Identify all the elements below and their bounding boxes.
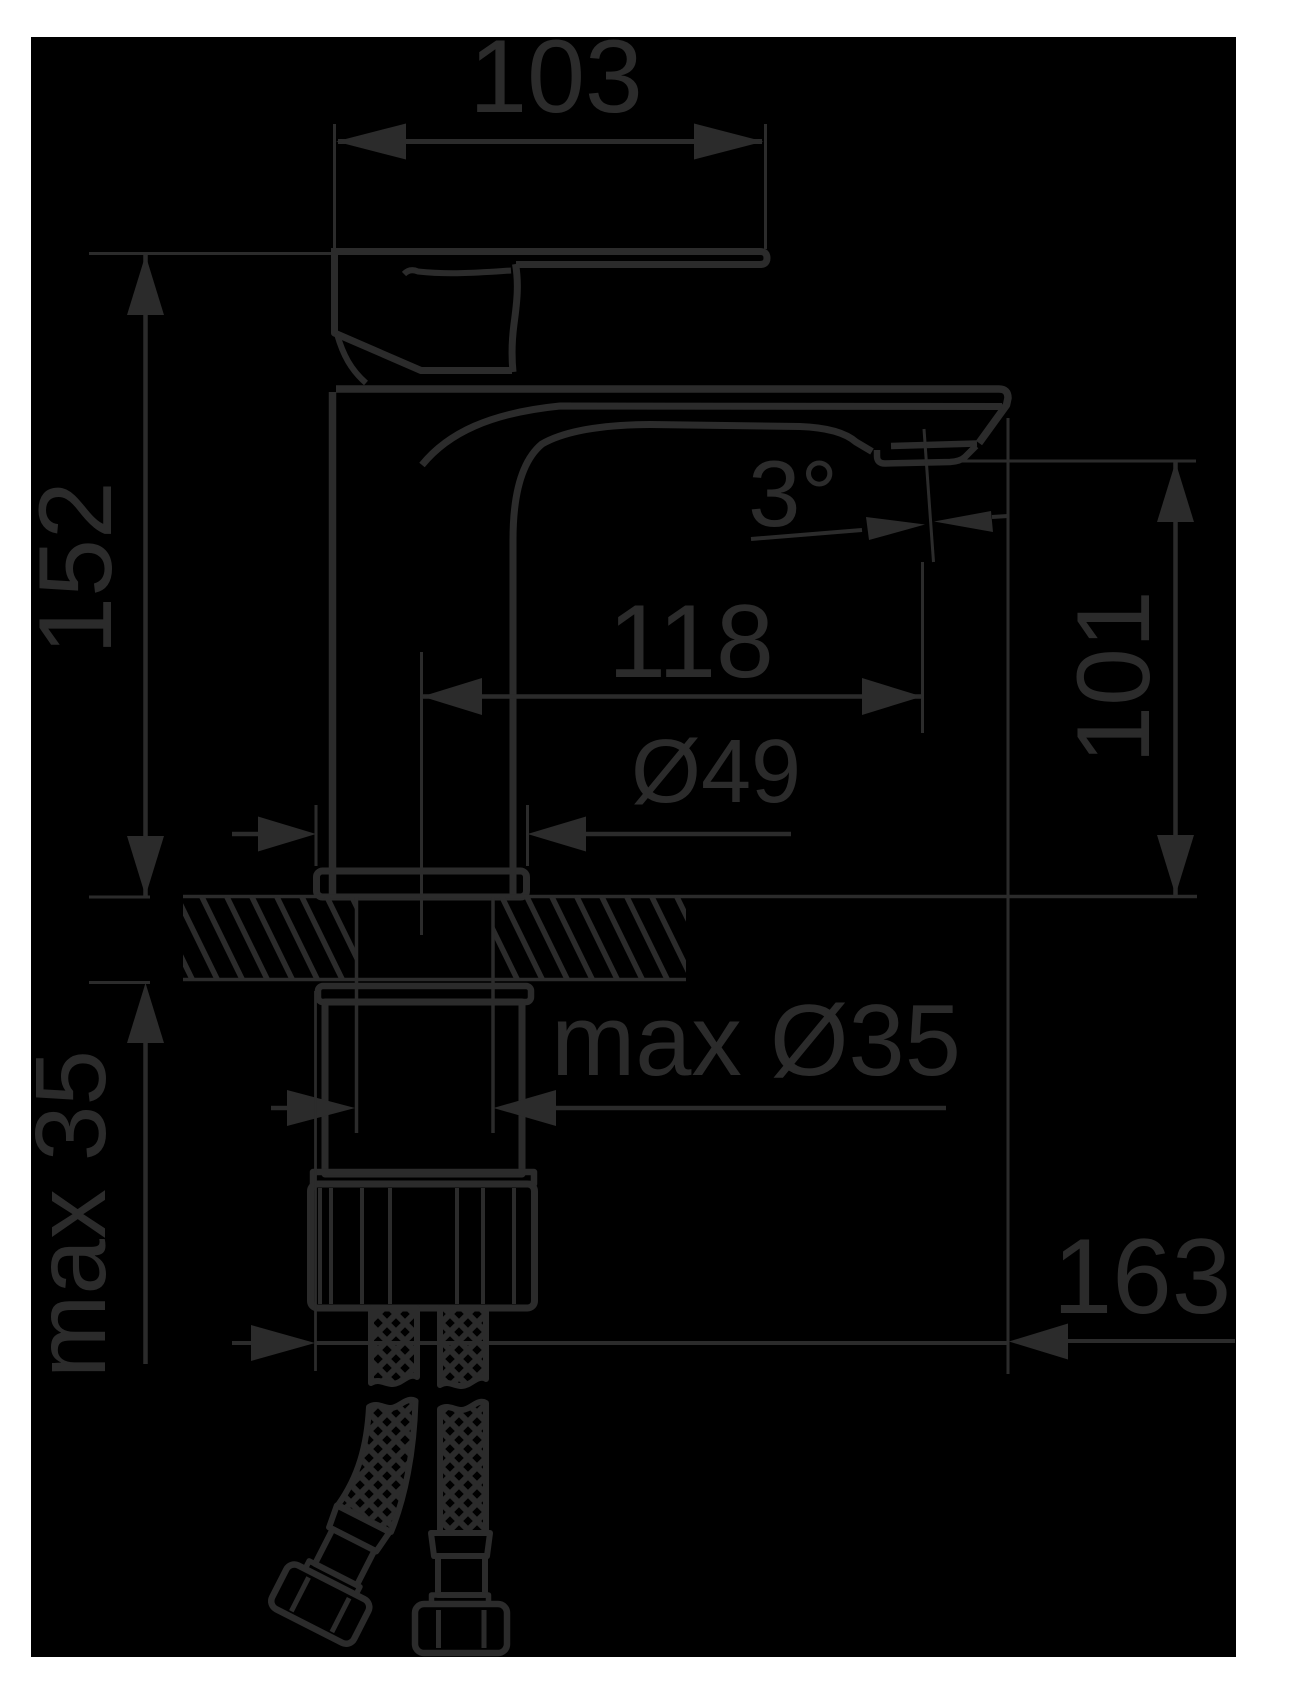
svg-text:3°: 3° bbox=[748, 441, 838, 546]
svg-text:163: 163 bbox=[1053, 1216, 1232, 1336]
svg-text:max Ø35: max Ø35 bbox=[551, 985, 961, 1097]
svg-text:101: 101 bbox=[1056, 590, 1172, 764]
svg-text:Ø49: Ø49 bbox=[631, 722, 801, 822]
svg-text:152: 152 bbox=[18, 481, 134, 655]
svg-text:103: 103 bbox=[469, 19, 643, 135]
svg-text:max 35: max 35 bbox=[15, 1050, 127, 1378]
svg-text:118: 118 bbox=[608, 584, 774, 700]
